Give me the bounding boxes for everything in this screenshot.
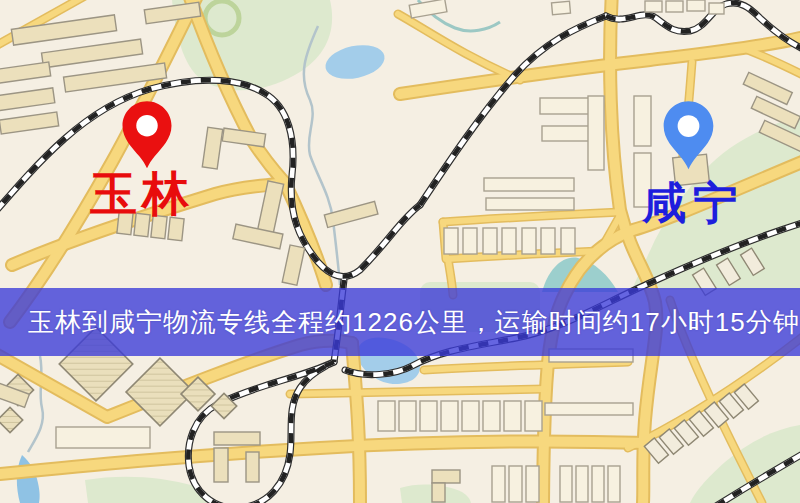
origin-pin-icon bbox=[119, 100, 175, 170]
origin-city-label: 玉林 bbox=[90, 170, 194, 217]
destination-city-label: 咸宁 bbox=[642, 181, 744, 225]
route-info-banner: 玉林到咸宁物流专线全程约1226公里，运输时间约17小时15分钟. bbox=[0, 288, 800, 356]
pin-hole bbox=[678, 115, 700, 137]
destination-pin-icon bbox=[660, 100, 717, 171]
map-background bbox=[0, 0, 800, 503]
route-info-text: 玉林到咸宁物流专线全程约1226公里，运输时间约17小时15分钟. bbox=[0, 305, 800, 340]
map-stage: 玉林到咸宁物流专线全程约1226公里，运输时间约17小时15分钟. 玉林 咸宁 bbox=[0, 0, 800, 503]
destination-marker[interactable] bbox=[660, 100, 717, 171]
origin-marker[interactable] bbox=[119, 100, 175, 170]
pin-hole bbox=[136, 115, 157, 136]
